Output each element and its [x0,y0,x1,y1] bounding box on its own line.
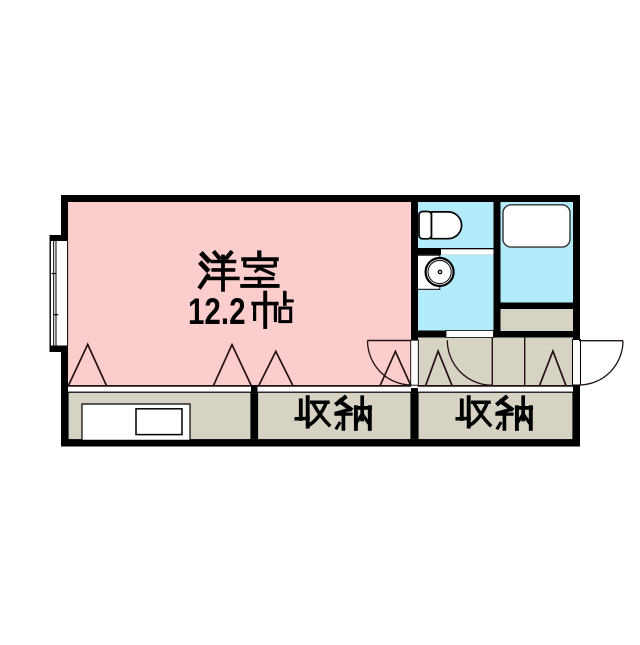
svg-text:12.2: 12.2 [188,291,246,332]
